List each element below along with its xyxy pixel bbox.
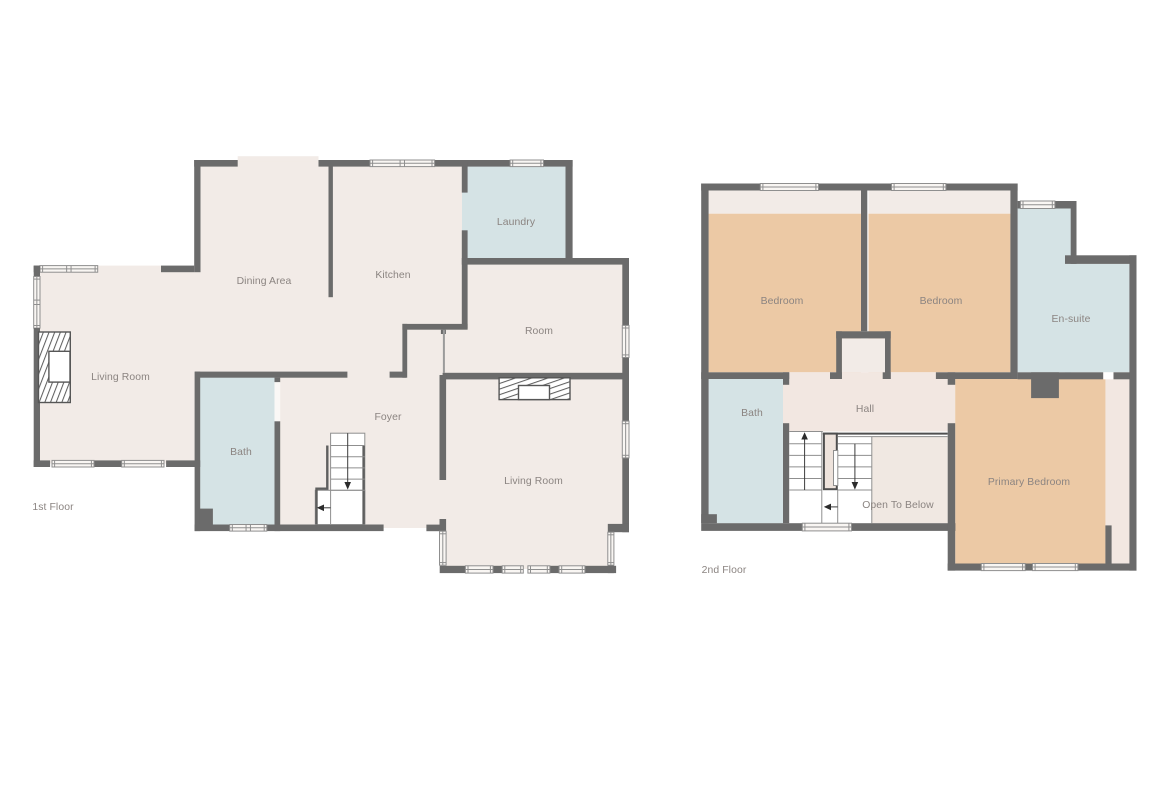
svg-text:Bath: Bath — [230, 447, 252, 458]
svg-text:Dining Area: Dining Area — [237, 276, 292, 287]
svg-text:1st Floor: 1st Floor — [32, 502, 74, 513]
svg-text:Bedroom: Bedroom — [920, 296, 963, 307]
svg-text:Bath: Bath — [741, 408, 763, 419]
svg-text:Laundry: Laundry — [497, 217, 536, 228]
svg-text:Room: Room — [525, 326, 553, 337]
svg-text:Open To Below: Open To Below — [862, 500, 934, 511]
svg-text:En-suite: En-suite — [1052, 314, 1091, 325]
svg-text:Living Room: Living Room — [91, 372, 150, 383]
svg-text:Kitchen: Kitchen — [375, 270, 410, 281]
svg-text:Foyer: Foyer — [374, 412, 401, 423]
svg-text:Hall: Hall — [856, 404, 874, 415]
svg-text:Primary Bedroom: Primary Bedroom — [988, 477, 1070, 488]
svg-text:Bedroom: Bedroom — [761, 296, 804, 307]
svg-text:Living Room: Living Room — [504, 476, 563, 487]
svg-text:2nd Floor: 2nd Floor — [702, 565, 747, 576]
